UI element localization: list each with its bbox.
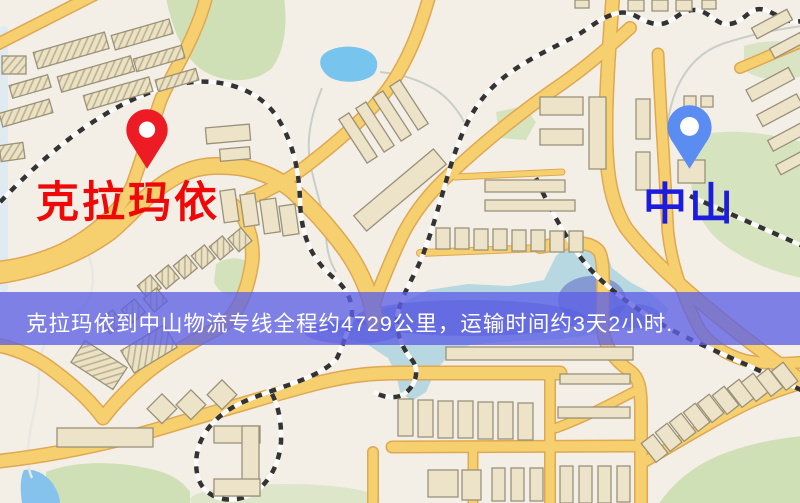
origin-pin-icon <box>125 104 169 174</box>
lake-top-right <box>320 47 377 82</box>
origin-label: 克拉玛依 <box>36 182 220 225</box>
route-info-banner: 克拉玛依到中山物流专线全程约4729公里，运输时间约3天2小时. <box>0 292 800 345</box>
destination-label: 中山 <box>643 183 735 227</box>
map-canvas <box>0 0 800 503</box>
destination-pin-icon <box>666 102 713 172</box>
destination-pin <box>666 102 713 172</box>
route-info-text: 克拉玛依到中山物流专线全程约4729公里，运输时间约3天2小时. <box>26 307 673 338</box>
origin-pin-shape <box>126 109 167 168</box>
destination-pin-shape <box>667 105 711 168</box>
origin-pin <box>125 104 169 174</box>
logistics-map-screenshot: 克拉玛依 中山 克拉玛依到中山物流专线全程约4729公里，运输时间约3天2小时. <box>0 0 800 503</box>
